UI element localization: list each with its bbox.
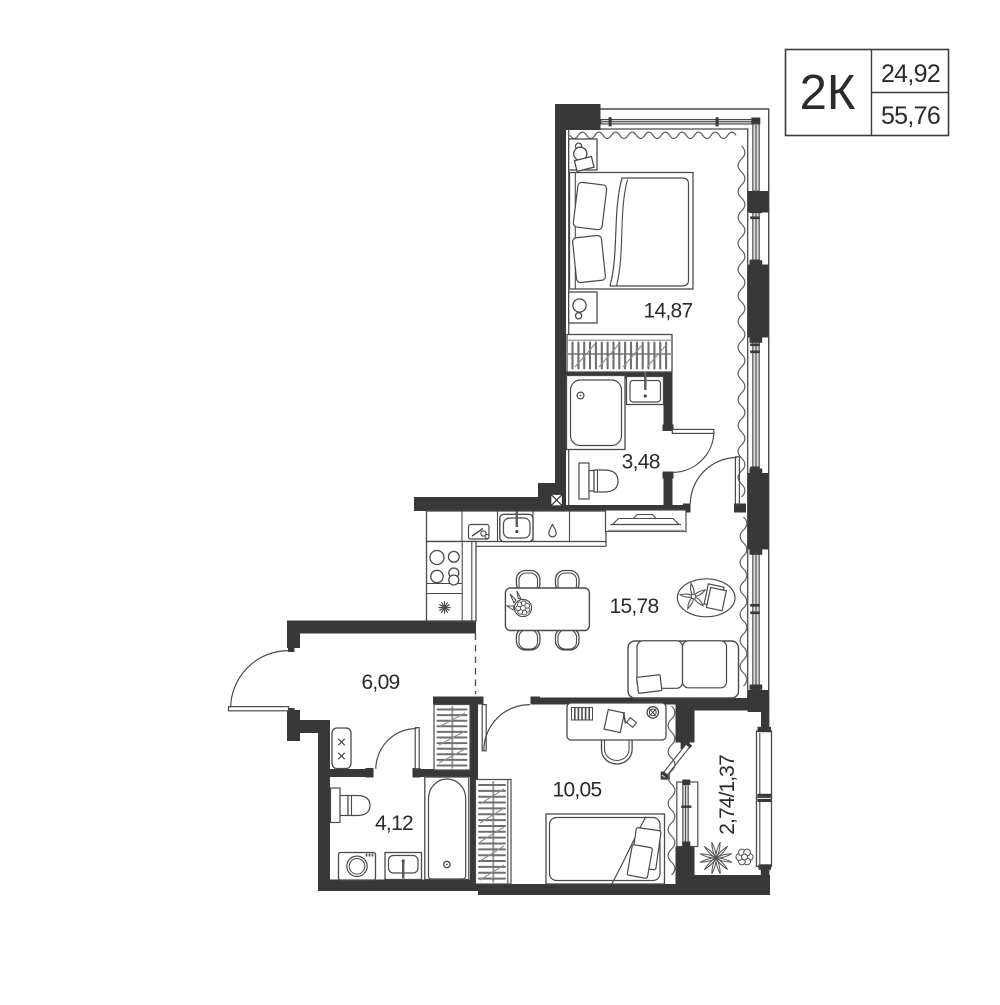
svg-text:2К: 2К [800, 66, 856, 120]
svg-text:15,78: 15,78 [609, 595, 658, 618]
svg-text:4,12: 4,12 [375, 812, 413, 835]
svg-text:10,05: 10,05 [552, 779, 601, 802]
svg-text:24,92: 24,92 [881, 60, 940, 88]
svg-text:6,09: 6,09 [361, 671, 399, 694]
svg-text:2,74/1,37: 2,74/1,37 [716, 755, 739, 835]
svg-text:14,87: 14,87 [643, 300, 692, 323]
svg-text:3,48: 3,48 [622, 451, 660, 474]
svg-text:55,76: 55,76 [881, 102, 940, 130]
